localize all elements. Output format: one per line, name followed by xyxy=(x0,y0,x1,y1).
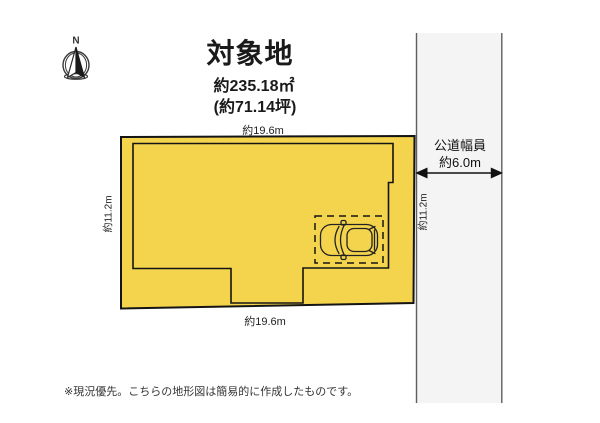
diagram-canvas xyxy=(0,0,600,423)
plot-outline xyxy=(121,136,415,309)
footnote-disclaimer: ※現況優先。こちらの地形図は簡易的に作成したものです。 xyxy=(64,383,358,399)
compass-north-icon xyxy=(63,47,89,79)
land-plot-diagram: N 対象地 約235.18㎡ (約71.14坪) 約19.6m 約19.6m 約… xyxy=(0,0,600,423)
